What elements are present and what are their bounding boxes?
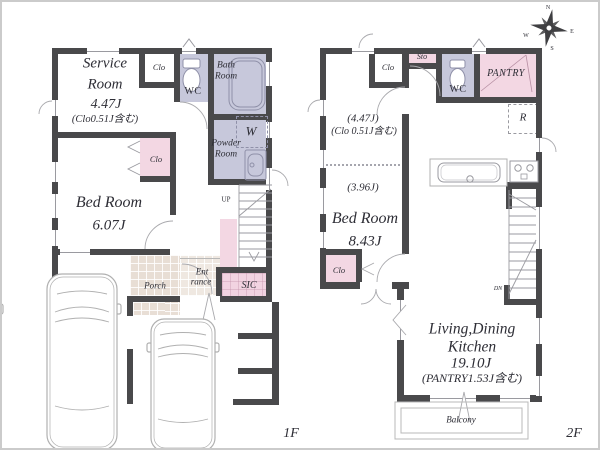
window	[52, 230, 58, 246]
window	[320, 232, 326, 248]
window	[52, 100, 58, 116]
stairs-dn-label: DN	[494, 286, 502, 292]
entrance-label-2: rance	[191, 278, 212, 287]
ldk-area: 19.10J	[451, 357, 491, 372]
bath-room-label-2: Room	[215, 72, 237, 82]
powder-room-label-1: Powder	[211, 139, 241, 149]
wall	[504, 299, 542, 305]
wall	[52, 132, 176, 138]
pantry-label: PANTRY	[487, 69, 525, 79]
wall	[402, 114, 409, 254]
window	[536, 376, 542, 396]
ldk-name-1: Living,Dining	[429, 321, 516, 337]
window	[397, 300, 404, 340]
front-door-opening	[180, 296, 220, 302]
closet-top-label-1f: Clo	[153, 63, 165, 72]
bedroom-part2-area: (3.96J)	[347, 183, 378, 194]
stove-icon	[510, 161, 538, 182]
balcony-door	[430, 395, 476, 402]
service-room-name-2: Room	[88, 78, 123, 93]
wall	[132, 296, 180, 302]
window	[536, 318, 542, 344]
floor2-label: 2F	[566, 427, 582, 441]
compass-s: S	[550, 46, 553, 52]
bedroom-double-door-opening	[360, 282, 392, 289]
storage-label-2f: Sto	[417, 53, 427, 61]
stairs-up-label: UP	[222, 197, 231, 204]
window	[60, 249, 90, 255]
wall	[238, 333, 272, 339]
wall	[238, 368, 272, 374]
floor-plan-canvas: N E S W Service Room 4.47J (Clo0.51J含む) …	[0, 0, 600, 450]
wall	[127, 349, 133, 404]
porch-label: Porch	[144, 282, 166, 291]
floor1-label: 1F	[283, 427, 299, 441]
fridge-label: R	[520, 113, 527, 124]
window	[52, 194, 58, 218]
wall	[272, 302, 279, 404]
wc-label-2f: WC	[449, 85, 466, 95]
ldk-note: (PANTRY1.53J含む)	[422, 372, 522, 384]
wall	[474, 97, 542, 103]
wall	[402, 48, 409, 88]
window	[536, 138, 542, 152]
vent-icon-1f	[183, 39, 195, 47]
window	[52, 162, 58, 182]
window	[352, 48, 374, 54]
bath-room-label-1: Bath	[217, 61, 235, 71]
wall	[170, 132, 176, 182]
wall	[506, 182, 512, 209]
wall	[216, 267, 272, 273]
wall	[170, 182, 176, 215]
kitchen-counter	[430, 159, 507, 186]
wall	[139, 82, 175, 88]
stair-strip-1f	[220, 219, 237, 267]
wall	[127, 296, 133, 316]
window	[320, 100, 326, 116]
powder-room-label-2: Room	[215, 150, 237, 160]
sic-label: SIC	[242, 281, 257, 291]
ldk-name-2: Kitchen	[448, 339, 496, 355]
washer-label: W	[246, 125, 257, 138]
wall	[174, 48, 180, 102]
compass-w: W	[523, 33, 529, 39]
car-icon-large	[2, 274, 121, 450]
window	[320, 188, 326, 214]
compass-n: N	[546, 5, 550, 11]
porch-step-1f	[133, 302, 165, 315]
bed-room-area-1f: 6.07J	[93, 219, 126, 234]
service-room-area: 4.47J	[91, 98, 122, 112]
closet-mid-label-1f: Clo	[150, 155, 162, 164]
window	[536, 207, 542, 249]
bed-room-name-2f: Bed Room	[332, 211, 398, 227]
window	[266, 62, 272, 86]
vent-icon-2f	[473, 39, 485, 47]
wc-label-1f: WC	[184, 87, 201, 97]
window	[472, 48, 486, 54]
window	[266, 168, 272, 190]
window	[182, 48, 196, 54]
stairs-2f	[509, 190, 536, 299]
service-room-note: (Clo0.51J含む)	[72, 115, 138, 126]
wall	[436, 48, 442, 103]
closet-arrows-1f	[128, 141, 140, 175]
compass-icon	[527, 6, 571, 50]
entrance-step-line	[180, 258, 220, 259]
wall	[208, 179, 272, 185]
bedroom-divider-dots	[326, 164, 404, 166]
wall	[233, 399, 279, 405]
entrance-label-1: Ent	[196, 268, 209, 277]
closet-top-label-2f: Clo	[382, 63, 394, 72]
wall	[474, 48, 480, 103]
bed-room-name-1f: Bed Room	[76, 195, 142, 211]
car-icon-small	[147, 319, 219, 450]
compass-e: E	[570, 29, 574, 35]
bedroom-part1-area: (4.47J)	[347, 114, 378, 125]
bedroom-part1-note: (Clo 0.51J含む)	[331, 127, 397, 137]
service-room-name-1: Service	[83, 57, 127, 72]
window	[320, 150, 326, 168]
window	[87, 48, 119, 54]
wall	[216, 296, 272, 302]
balcony-label: Balcony	[446, 416, 476, 425]
closet-bottom-label-2f: Clo	[333, 266, 345, 275]
wall	[52, 48, 272, 54]
bed-room-area-2f: 8.43J	[349, 235, 382, 250]
window	[500, 395, 530, 402]
